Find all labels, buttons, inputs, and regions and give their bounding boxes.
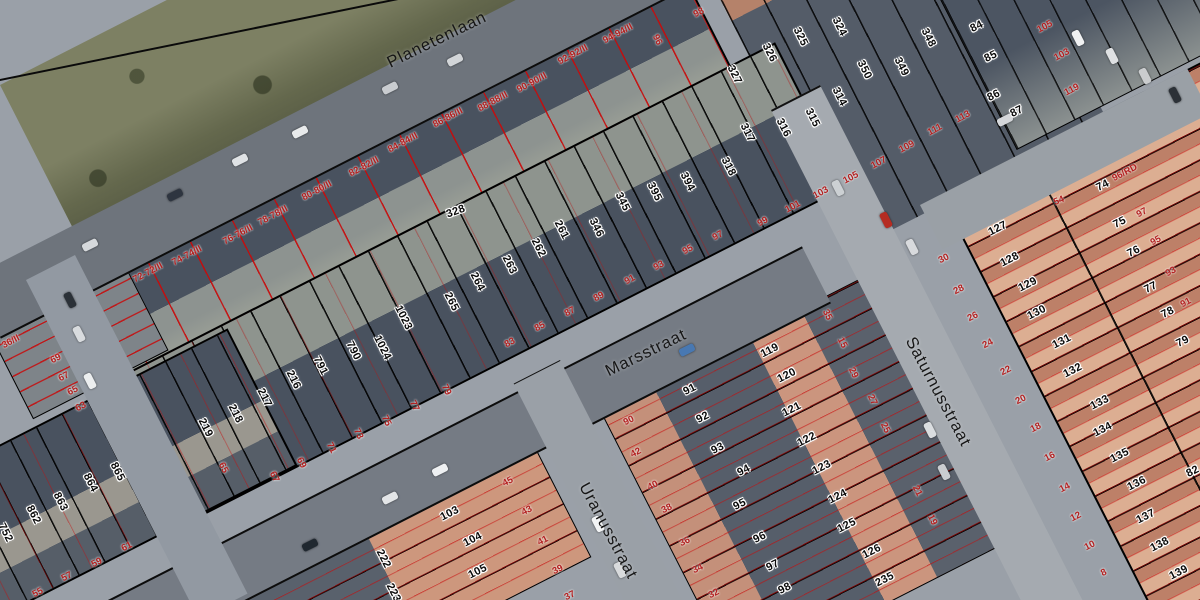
car (905, 238, 919, 256)
house-number-label: 28 (952, 283, 966, 296)
house-number-label: 10 (1083, 539, 1097, 552)
house-number-label: 16 (1043, 450, 1057, 463)
house-number-label: 14 (1058, 481, 1072, 494)
house-number-label: 12 (1069, 510, 1083, 523)
aerial-cadastral-map[interactable]: PlanetenlaanMarsstraatUranusstraatSaturn… (0, 0, 1200, 600)
house-number-label: 18 (1029, 421, 1043, 434)
house-number-label: 8 (1099, 568, 1108, 579)
house-number-label: 30 (937, 252, 951, 265)
house-number-label: 26 (966, 310, 980, 323)
house-number-label: 37 (563, 589, 577, 600)
house-number-label: 24 (981, 337, 995, 350)
house-number-label: 22 (999, 364, 1013, 377)
house-number-label: 20 (1014, 393, 1028, 406)
